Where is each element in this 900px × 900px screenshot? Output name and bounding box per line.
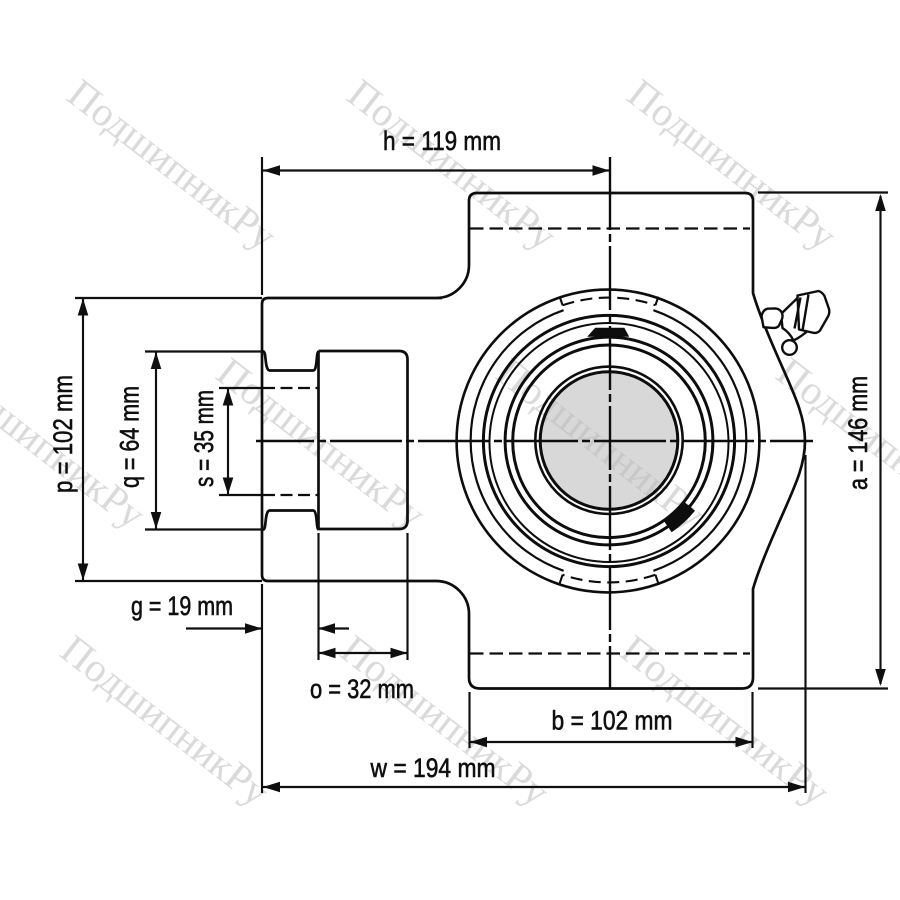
svg-text:p = 102 mm: p = 102 mm	[48, 375, 78, 493]
svg-text:s = 35 mm: s = 35 mm	[189, 390, 219, 487]
svg-text:o = 32 mm: o = 32 mm	[310, 674, 414, 704]
svg-text:h = 119 mm: h = 119 mm	[383, 126, 501, 156]
svg-text:a = 146 mm: a = 146 mm	[843, 376, 873, 490]
svg-text:w = 194 mm: w = 194 mm	[370, 753, 496, 783]
svg-text:q = 64 mm: q = 64 mm	[115, 386, 145, 488]
svg-text:g = 19 mm: g = 19 mm	[131, 591, 233, 621]
svg-text:b = 102 mm: b = 102 mm	[552, 706, 673, 736]
